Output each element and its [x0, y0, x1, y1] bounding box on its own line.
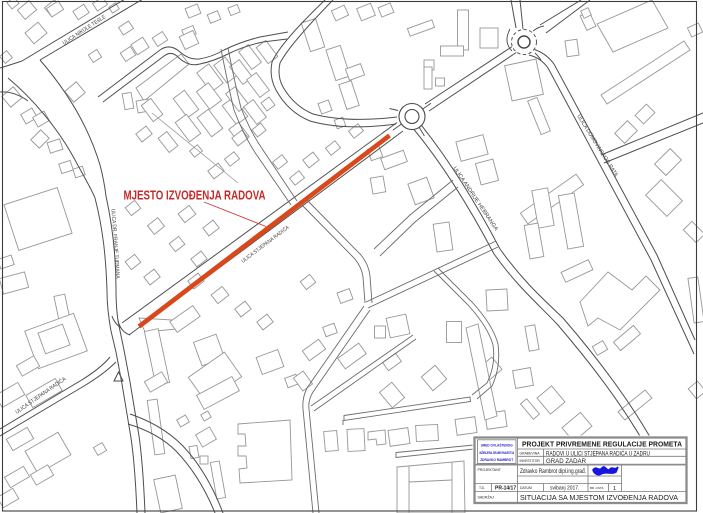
svg-text:PR-14/17: PR-14/17	[495, 486, 516, 492]
svg-text:URED OVLAŠTENOG: URED OVLAŠTENOG	[481, 442, 513, 447]
svg-text:PROJEKTANT: PROJEKTANT	[478, 468, 502, 472]
svg-text:INŽENJERA GRAĐEVINARSTVA: INŽENJERA GRAĐEVINARSTVA	[479, 450, 514, 455]
svg-text:T.D.: T.D.	[479, 486, 485, 490]
svg-text:GRAĐEVINA: GRAĐEVINA	[520, 451, 541, 455]
svg-text:Zdravko Rambrot dipl.ing.građ.: Zdravko Rambrot dipl.ing.građ.	[520, 468, 586, 475]
svg-text:RADOVI U ULICI STJEPANA RADIĆA: RADOVI U ULICI STJEPANA RADIĆA U ZADRU	[546, 448, 650, 457]
svg-text:GRAD ZADAR: GRAD ZADAR	[546, 458, 586, 465]
svg-text:PROJEKT PRIVREMENE REGULACIJE: PROJEKT PRIVREMENE REGULACIJE PROMETA	[522, 439, 682, 448]
svg-text:svibanj 2017.: svibanj 2017.	[550, 486, 579, 492]
svg-text:SADRŽAJ: SADRŽAJ	[478, 495, 495, 500]
svg-text:SITUACIJA SA MJESTOM IZVOĐENJA: SITUACIJA SA MJESTOM IZVOĐENJA RADOVA	[520, 495, 678, 502]
svg-text:INVESTITOR: INVESTITOR	[520, 459, 541, 463]
svg-text:MJESTO IZVOĐENJA RADOVA: MJESTO IZVOĐENJA RADOVA	[124, 189, 266, 203]
svg-text:BR. LISTA: BR. LISTA	[590, 486, 604, 490]
svg-text:DATUM: DATUM	[520, 486, 532, 490]
svg-text:1: 1	[613, 486, 616, 492]
svg-text:ZDRAVKO RAMBROT: ZDRAVKO RAMBROT	[480, 458, 514, 462]
